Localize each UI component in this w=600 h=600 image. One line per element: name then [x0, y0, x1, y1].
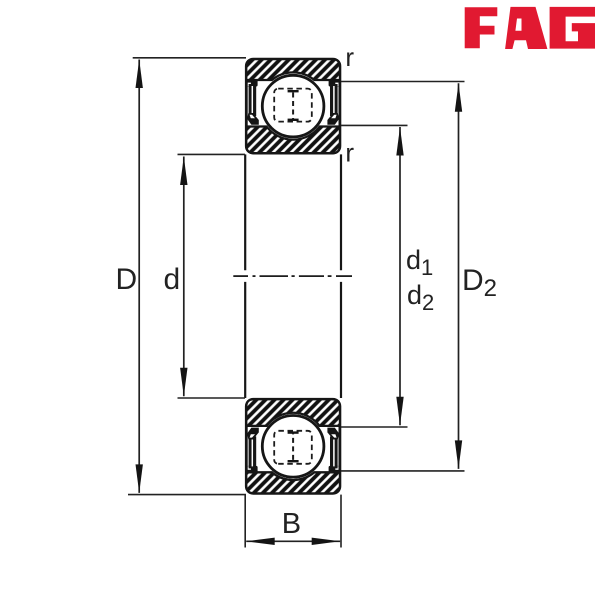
svg-text:r: r — [345, 42, 354, 72]
svg-text:B: B — [282, 508, 301, 540]
svg-text:D: D — [116, 263, 138, 296]
svg-text:r: r — [345, 138, 354, 168]
svg-text:d: d — [164, 263, 181, 296]
